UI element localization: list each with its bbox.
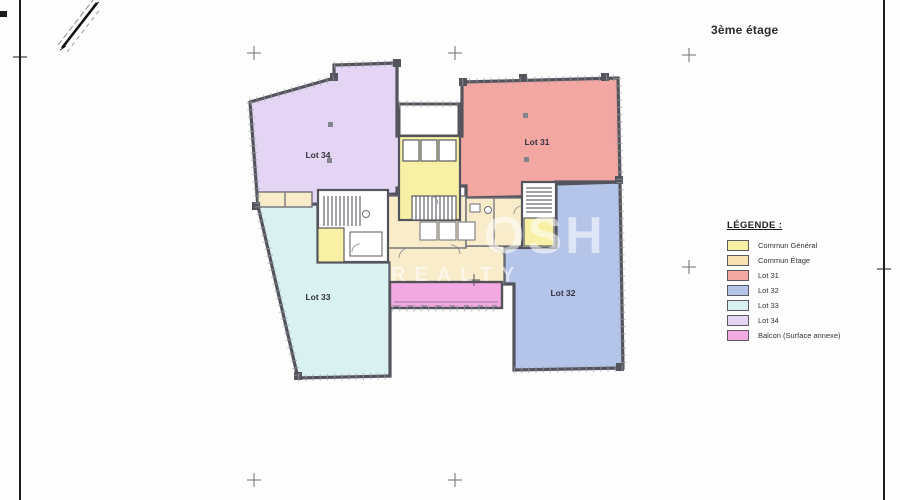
lot33-label: Lot 33 [305,292,330,302]
legend-item-commun-etage: Commun Étage [727,255,879,265]
legend-label: Commun Général [758,241,817,250]
roof-notch-room [399,104,459,136]
central-core [399,136,460,220]
legend-item-commun-general: Commun Général [727,240,879,250]
legend-label: Lot 34 [758,316,779,325]
legend-item-lot33: Lot 33 [727,300,879,310]
survey-cross [682,260,696,274]
legend-item-lot34: Lot 34 [727,315,879,325]
survey-cross [448,46,462,60]
legend-item-lot32: Lot 32 [727,285,879,295]
elevator-cells [403,140,456,161]
legend-swatch-lot31 [727,270,749,281]
legend-label: Commun Étage [758,256,810,265]
legend-label: Lot 32 [758,286,779,295]
legend-label: Balcon (Surface annexe) [758,331,841,340]
balcony-area [390,282,502,308]
survey-cross [448,473,462,487]
legend-swatch-commun-etage [727,255,749,266]
survey-cross [247,46,261,60]
legend-item-lot31: Lot 31 [727,270,879,280]
legend-title: LÉGENDE : [727,220,879,231]
left-stairwell [318,190,388,262]
survey-cross [682,48,696,62]
floor-plan-sheet: Lot 34 Lot 31 Lot 33 Lot 32 OSH REALTY 3… [0,0,900,500]
legend-label: Lot 31 [758,271,779,280]
legend-swatch-lot32 [727,285,749,296]
legend: LÉGENDE : Commun Général Commun Étage Lo… [727,220,879,345]
survey-cross [247,473,261,487]
lot31-label: Lot 31 [524,137,549,147]
legend-item-balcon: Balcon (Surface annexe) [727,330,879,340]
right-stairwell [522,182,556,248]
legend-label: Lot 33 [758,301,779,310]
scale-bar-icon [58,0,101,52]
lot34-label: Lot 34 [305,150,330,160]
lot32-label: Lot 32 [550,288,575,298]
legend-swatch-lot34 [727,315,749,326]
building-plan: Lot 34 Lot 31 Lot 33 Lot 32 [250,59,624,380]
legend-swatch-balcon [727,330,749,341]
legend-swatch-lot33 [727,300,749,311]
page-title: 3ème étage [711,23,778,37]
stair-treads-right [526,188,552,212]
legend-swatch-commun-general [727,240,749,251]
